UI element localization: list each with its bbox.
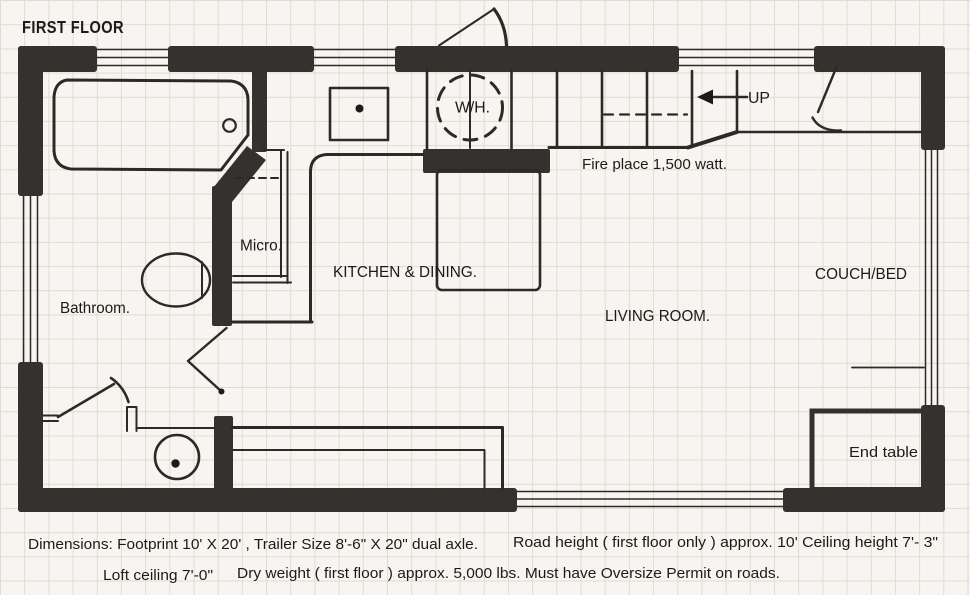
label-living-room: LIVING ROOM. xyxy=(605,308,710,325)
entry-door-swing-line xyxy=(439,9,494,46)
window-top-right xyxy=(679,50,814,66)
stairs xyxy=(549,71,747,148)
label-up: UP xyxy=(748,90,770,107)
cooktop-burner-dot xyxy=(356,105,364,113)
label-bathroom: Bathroom. xyxy=(60,300,130,317)
living-room-door-leaf xyxy=(818,67,837,112)
floor-plan-page: FIRST FLOOR W/H. UP Fire place 1,500 wat… xyxy=(0,0,970,595)
back-door-leaf xyxy=(58,384,114,417)
wall-bathroom-closet xyxy=(212,186,232,326)
sink-room xyxy=(43,378,214,479)
label-kitchen-dining: KITCHEN & DINING. xyxy=(333,264,477,281)
label-micro: Micro. xyxy=(240,238,282,255)
wall-top-3 xyxy=(395,46,679,72)
wall-left-upper xyxy=(18,46,43,196)
kitchen-hall-wall xyxy=(311,155,424,321)
wall-bottom-left xyxy=(18,488,517,512)
note-road-height: Road height ( first floor only ) approx.… xyxy=(513,534,938,551)
kitchen-counter-inner xyxy=(232,450,485,489)
window-top-left xyxy=(97,50,168,66)
bathtub xyxy=(54,80,248,170)
door-stub-wall xyxy=(43,416,58,422)
note-dry-weight: Dry weight ( first floor ) approx. 5,000… xyxy=(237,565,780,582)
up-arrowhead xyxy=(697,90,713,105)
note-dimensions: Dimensions: Footprint 10' X 20' , Traile… xyxy=(28,536,478,553)
bathtub-drain xyxy=(223,119,236,132)
page-title: FIRST FLOOR xyxy=(22,17,124,37)
back-door-swing-arc xyxy=(111,378,129,402)
sink-drain xyxy=(171,459,179,467)
wall-bathroom-right xyxy=(252,70,267,152)
note-loft-ceiling: Loft ceiling 7'-0" xyxy=(103,567,213,584)
window-left-wall xyxy=(24,196,38,363)
wall-sink-divider xyxy=(214,416,233,504)
kitchen-area xyxy=(232,88,540,489)
label-water-heater: W/H. xyxy=(455,100,490,117)
sink-wall-jog xyxy=(127,407,137,431)
wall-right-upper xyxy=(921,46,945,150)
window-right-wall xyxy=(926,150,938,406)
interior-walls xyxy=(212,70,550,504)
bathroom-door xyxy=(188,328,227,392)
label-fireplace: Fire place 1,500 watt. xyxy=(582,156,727,173)
living-room-door-arc xyxy=(813,118,842,131)
kitchen-counter-outer xyxy=(232,428,503,490)
stair-diagonal-edge xyxy=(688,132,737,148)
sink xyxy=(155,435,199,479)
windows xyxy=(24,50,938,507)
bathroom-door-knob xyxy=(219,389,225,395)
toilet xyxy=(142,254,210,307)
entry-door xyxy=(439,9,507,46)
entry-door-leaf-arc xyxy=(494,9,507,46)
label-end-table: End table xyxy=(849,444,918,461)
cooktop-square xyxy=(330,88,388,140)
wall-top-2 xyxy=(168,46,314,72)
window-top-middle xyxy=(314,50,398,66)
stair-treads xyxy=(557,71,737,147)
floor-plan-drawing: FIRST FLOOR W/H. UP Fire place 1,500 wat… xyxy=(0,0,970,595)
label-couch-bed: COUCH/BED xyxy=(815,266,907,283)
window-bottom-wall xyxy=(517,492,783,507)
